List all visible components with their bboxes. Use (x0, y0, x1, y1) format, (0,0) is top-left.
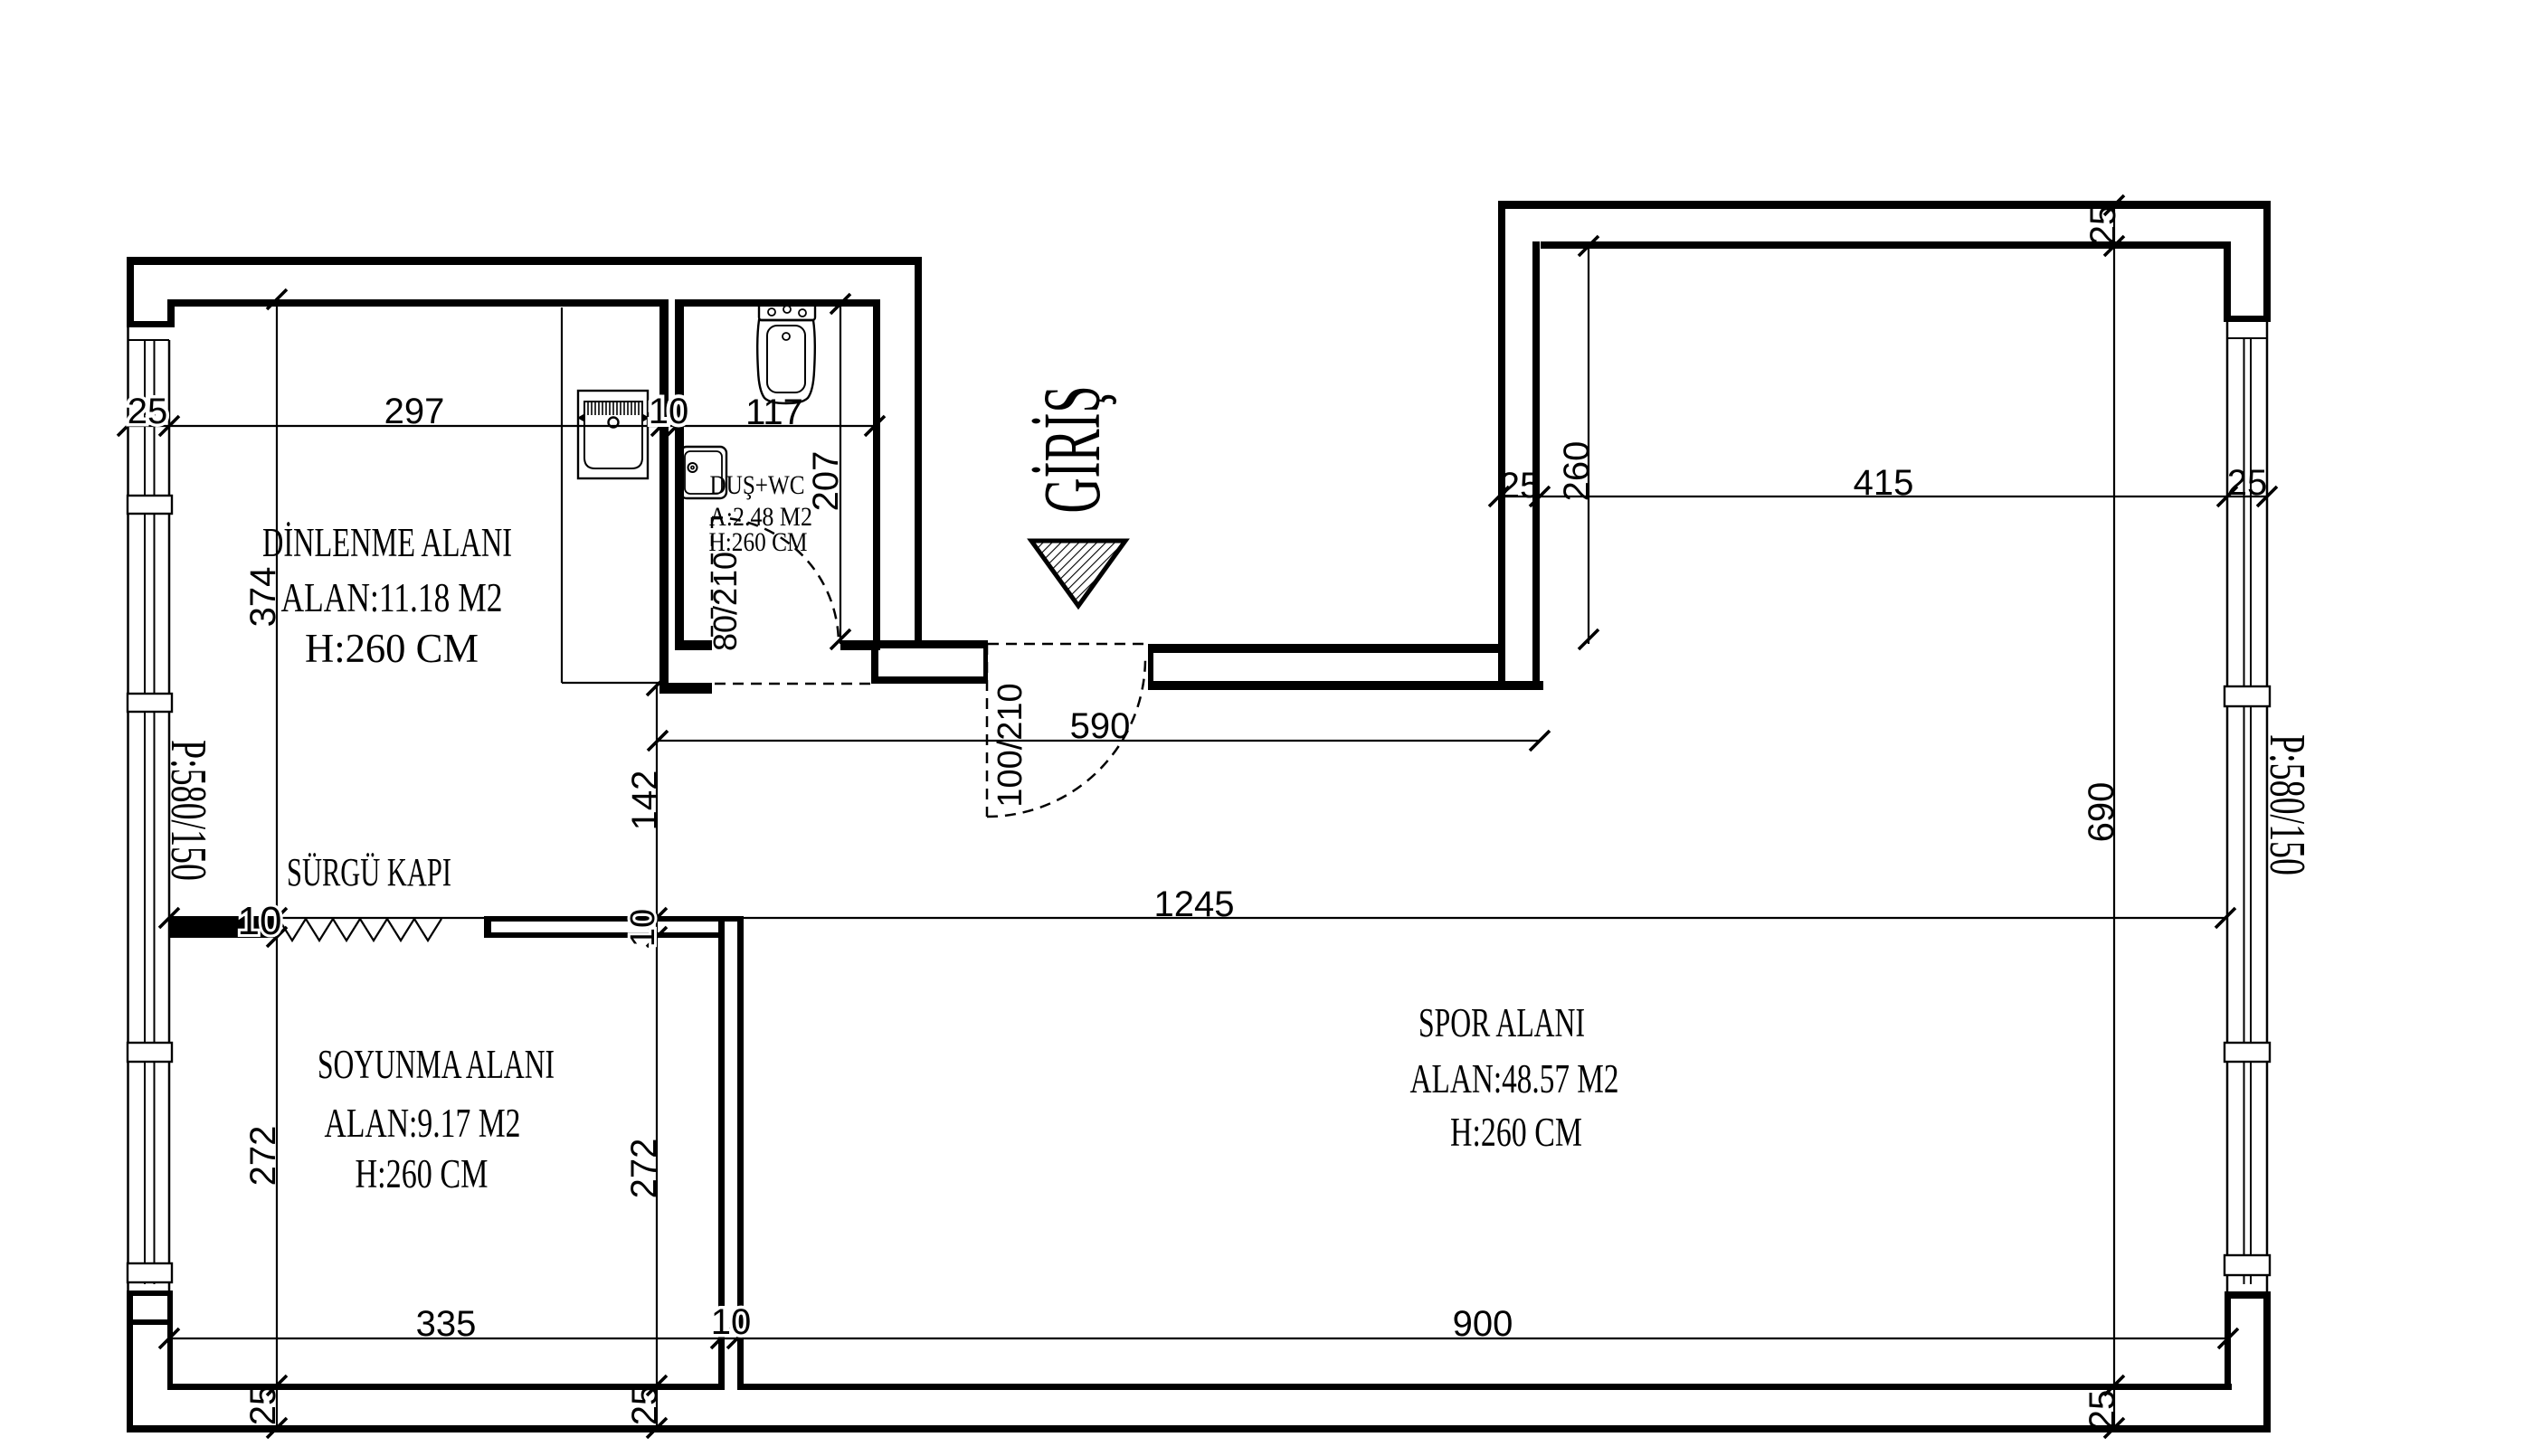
svg-text:25: 25 (128, 392, 168, 431)
svg-text:ALAN:9.17 M2: ALAN:9.17 M2 (325, 1101, 521, 1146)
svg-text:297: 297 (384, 392, 445, 431)
svg-text:900: 900 (1453, 1304, 1513, 1344)
svg-text:25: 25 (1500, 466, 1541, 506)
svg-text:25: 25 (2083, 205, 2123, 246)
svg-text:207: 207 (806, 451, 846, 512)
svg-text:374: 374 (243, 567, 283, 628)
svg-text:117: 117 (745, 392, 803, 432)
svg-text:GİRİŞ: GİRİŞ (1028, 386, 1117, 514)
svg-text:P:580/150: P:580/150 (160, 740, 216, 881)
svg-text:272: 272 (624, 1139, 664, 1199)
svg-text:25: 25 (2082, 1390, 2122, 1431)
svg-text:H:260 CM: H:260 CM (356, 1151, 489, 1196)
svg-text:80/210: 80/210 (707, 552, 744, 651)
svg-text:DİNLENME ALANI: DİNLENME ALANI (262, 520, 512, 565)
svg-text:10: 10 (711, 1302, 752, 1342)
svg-text:1245: 1245 (1154, 884, 1235, 924)
svg-text:335: 335 (416, 1304, 477, 1344)
svg-text:272: 272 (243, 1126, 283, 1187)
svg-text:10: 10 (649, 392, 689, 431)
svg-text:ALAN:48.57 M2: ALAN:48.57 M2 (1410, 1056, 1619, 1101)
svg-text:25: 25 (243, 1385, 283, 1426)
svg-text:690: 690 (2082, 782, 2121, 843)
svg-text:SÜRGÜ KAPI: SÜRGÜ KAPI (287, 850, 451, 894)
svg-text:415: 415 (1854, 463, 1914, 503)
svg-text:DUŞ+WC: DUŞ+WC (710, 470, 805, 500)
svg-text:ALAN:11.18 M2: ALAN:11.18 M2 (281, 575, 503, 620)
svg-text:142: 142 (625, 771, 665, 831)
svg-text:P:580/150: P:580/150 (2259, 734, 2315, 875)
svg-text:10: 10 (624, 909, 662, 947)
svg-text:10: 10 (238, 899, 282, 943)
svg-text:SOYUNMA ALANI: SOYUNMA ALANI (318, 1042, 555, 1087)
svg-text:SPOR ALANI: SPOR ALANI (1418, 1000, 1585, 1045)
svg-text:100/210: 100/210 (991, 683, 1029, 807)
svg-text:H:260 CM: H:260 CM (1450, 1110, 1582, 1155)
svg-text:25: 25 (625, 1385, 665, 1426)
svg-text:H:260 CM: H:260 CM (305, 626, 479, 671)
svg-text:25: 25 (2227, 463, 2268, 503)
svg-text:590: 590 (1070, 706, 1131, 746)
svg-text:260: 260 (1557, 441, 1597, 502)
